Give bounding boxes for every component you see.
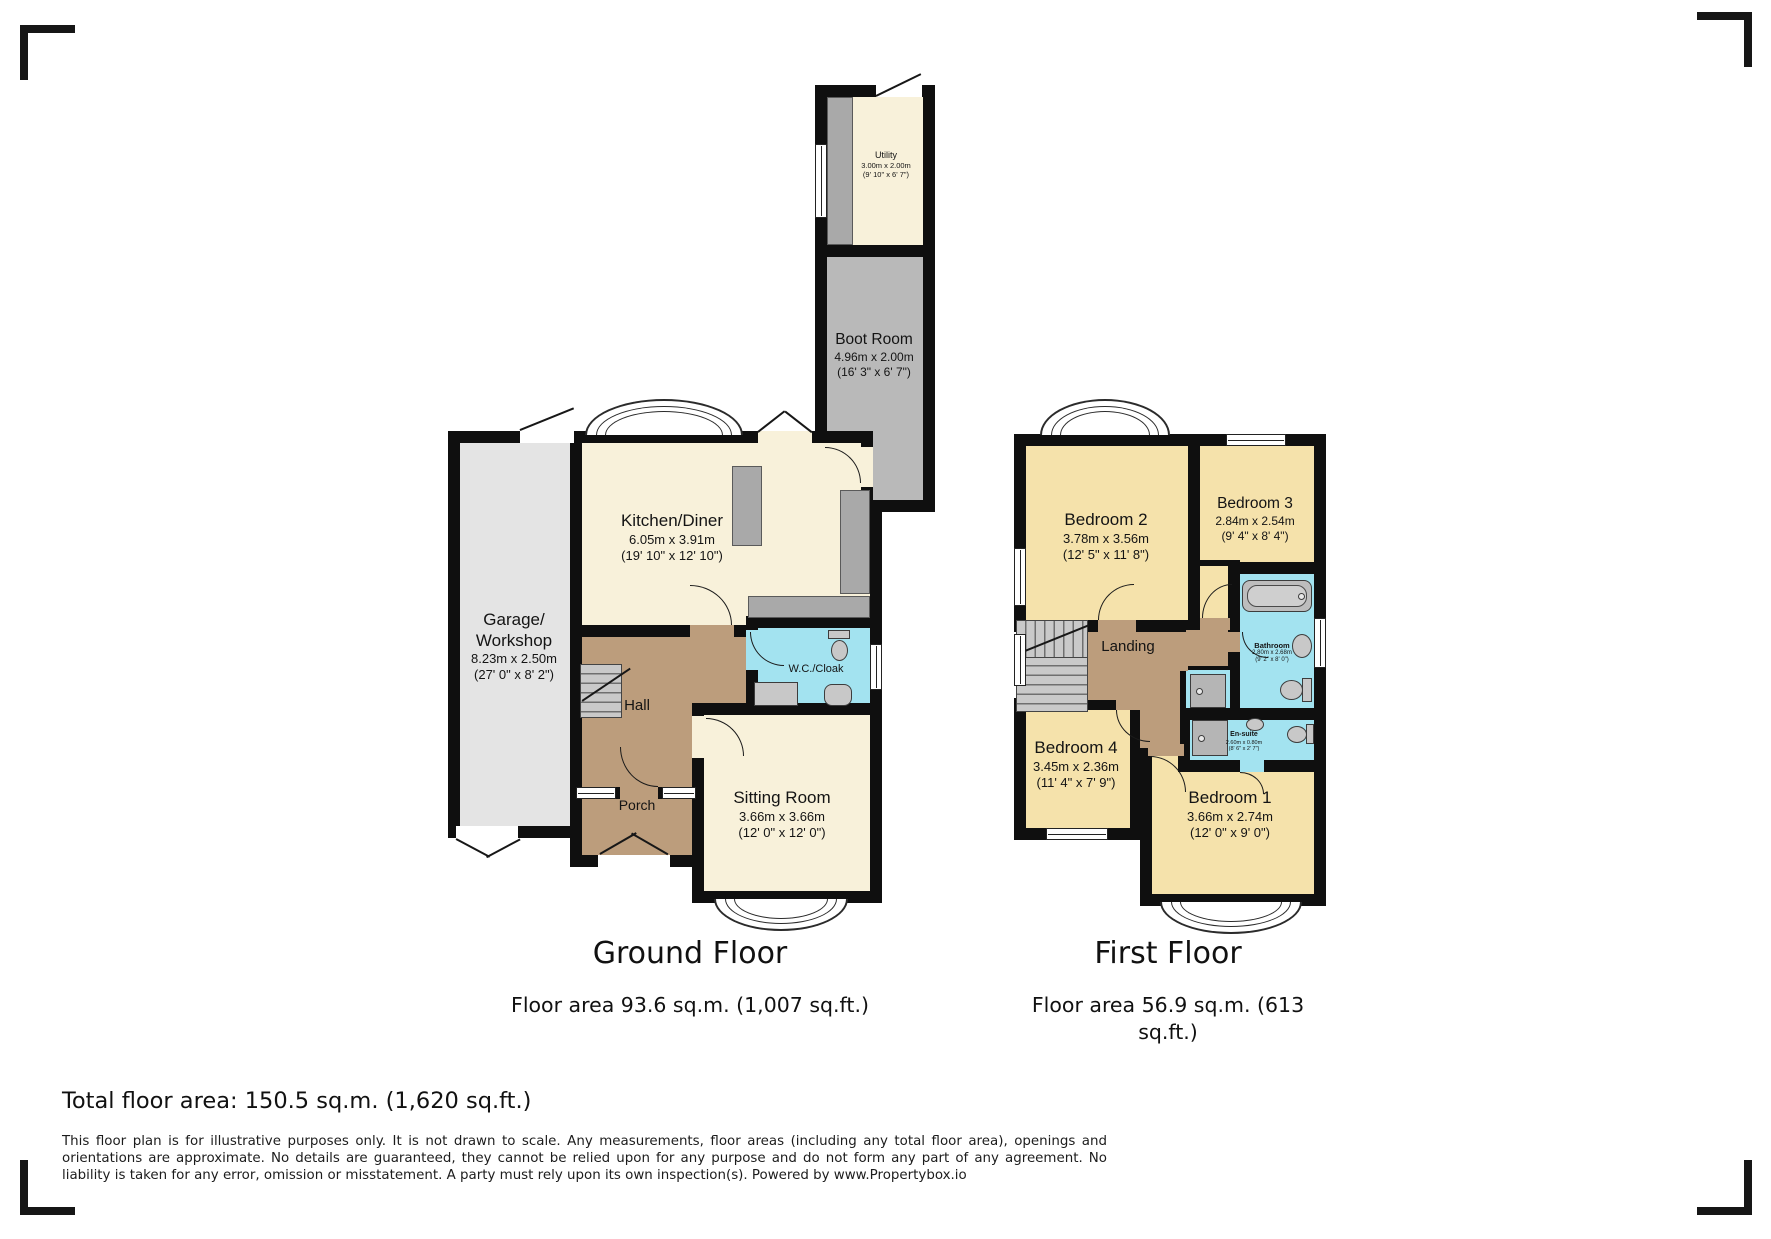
bedroom3-window — [1226, 434, 1286, 446]
first-floor-area: Floor area 56.9 sq.m. (613 sq.ft.) — [1018, 992, 1318, 1045]
ground-floor-title: Ground Floor — [593, 936, 788, 971]
label-porch: Porch — [619, 797, 656, 814]
ensuite-shower-icon — [1192, 720, 1228, 756]
garage-bottom-door-gap — [456, 826, 518, 838]
bathroom-toilet-bowl-icon — [1280, 680, 1303, 700]
wc-toilet-cistern-icon — [828, 630, 850, 639]
ground-floor-area: Floor area 93.6 sq.m. (1,007 sq.ft.) — [511, 992, 869, 1019]
bedroom4-door-gap — [1116, 698, 1150, 710]
bathroom-door-gap — [1228, 632, 1240, 652]
label-sitting-room: Sitting Room 3.66m x 3.66m (12' 0" x 12'… — [733, 788, 830, 840]
ensuite-door-gap — [1240, 760, 1264, 772]
label-boot-room: Boot Room 4.96m x 2.00m (16' 3" x 6' 7") — [834, 331, 913, 379]
bathroom-toilet-cistern-icon — [1302, 678, 1312, 702]
kitchen-boot-door-gap — [861, 447, 873, 487]
room-landing-d — [1088, 658, 1142, 700]
label-bedroom1: Bedroom 1 3.66m x 2.74m (12' 0" x 9' 0") — [1187, 788, 1273, 840]
label-bathroom: Bathroom 2.80m x 2.68m (9' 2" x 8' 0") — [1252, 641, 1292, 665]
sitting-room-bay-window — [714, 899, 848, 931]
label-bedroom3: Bedroom 3 2.84m x 2.54m (9' 4" x 8' 4") — [1215, 495, 1294, 543]
room-landing-c — [1186, 630, 1228, 666]
garage-bottom-door-leaf-right — [486, 838, 521, 858]
corner-mark-top-right — [1697, 12, 1752, 67]
label-garage: Garage/ Workshop 8.23m x 2.50m (27' 0" x… — [466, 610, 562, 683]
disclaimer-text: This floor plan is for illustrative purp… — [62, 1133, 1107, 1184]
wc-toilet-bowl-icon — [831, 640, 848, 661]
first-floor-title: First Floor — [1094, 936, 1241, 971]
bath-tub-icon — [1242, 580, 1312, 612]
kitchen-back-door-leaf-right — [784, 410, 812, 433]
label-hall: Hall — [624, 697, 650, 715]
corner-mark-top-left — [20, 25, 75, 80]
label-ensuite: En-suite 2.60m x 0.80m (8' 6" x 2' 7") — [1226, 731, 1262, 753]
stairs-window — [1014, 634, 1026, 686]
wc-cloak-cupboard-icon — [754, 682, 798, 706]
utility-worktop — [827, 97, 853, 245]
kitchen-back-door-gap — [758, 431, 812, 443]
sitting-door-gap — [692, 716, 704, 758]
total-floor-area: Total floor area: 150.5 sq.m. (1,620 sq.… — [62, 1088, 531, 1114]
ensuite-basin-icon — [1246, 718, 1264, 731]
bedroom2-door-gap — [1098, 620, 1136, 632]
kitchen-counter-horizontal — [748, 596, 870, 618]
bedroom2-window — [1014, 548, 1026, 606]
wc-basin-icon — [824, 684, 852, 706]
boot-room-join — [873, 425, 923, 449]
kitchen-back-door-leaf-left — [757, 410, 785, 433]
bedroom2-bay-window — [1040, 399, 1170, 435]
landing-stairs-lower — [1016, 656, 1088, 712]
garage-top-door-leaf — [520, 407, 575, 431]
label-landing: Landing — [1101, 638, 1154, 656]
kitchen-bay-window — [585, 399, 743, 435]
porch-window-right — [662, 787, 696, 799]
floor-plan-canvas: Utility 3.00m x 2.00m (9' 10" x 6' 7") B… — [0, 0, 1771, 1239]
utility-window — [815, 144, 827, 218]
wc-window — [870, 644, 882, 690]
kitchen-island — [732, 466, 762, 546]
label-bedroom2: Bedroom 2 3.78m x 3.56m (12' 5" x 11' 8"… — [1063, 510, 1149, 562]
ensuite-toilet-bowl-icon — [1287, 726, 1307, 743]
label-kitchen-diner: Kitchen/Diner 6.05m x 3.91m (19' 10" x 1… — [621, 511, 723, 563]
bedroom1-door-gap — [1148, 744, 1184, 756]
kitchen-hall-door-gap — [690, 625, 734, 637]
bedroom4-window — [1046, 828, 1108, 840]
porch-front-door-gap — [598, 855, 670, 867]
label-wc-cloak: W.C./Cloak — [788, 663, 843, 676]
bedroom3-door-gap — [1200, 618, 1230, 630]
bathroom-window — [1314, 618, 1326, 668]
bedroom1-bay-window — [1160, 902, 1302, 934]
airing-cupboard-icon — [1190, 674, 1226, 708]
kitchen-counter-vertical — [840, 490, 870, 594]
garage-top-door-gap — [520, 431, 574, 443]
corner-mark-bottom-right — [1697, 1160, 1752, 1215]
label-bedroom4: Bedroom 4 3.45m x 2.36m (11' 4" x 7' 9") — [1033, 738, 1119, 790]
ensuite-toilet-cistern-icon — [1306, 724, 1314, 744]
porch-window-left — [576, 787, 616, 799]
bathroom-basin-icon — [1292, 634, 1312, 658]
hall-stairs — [580, 664, 622, 718]
label-utility: Utility 3.00m x 2.00m (9' 10" x 6' 7") — [861, 150, 911, 179]
bedroom3-join — [1200, 566, 1228, 578]
